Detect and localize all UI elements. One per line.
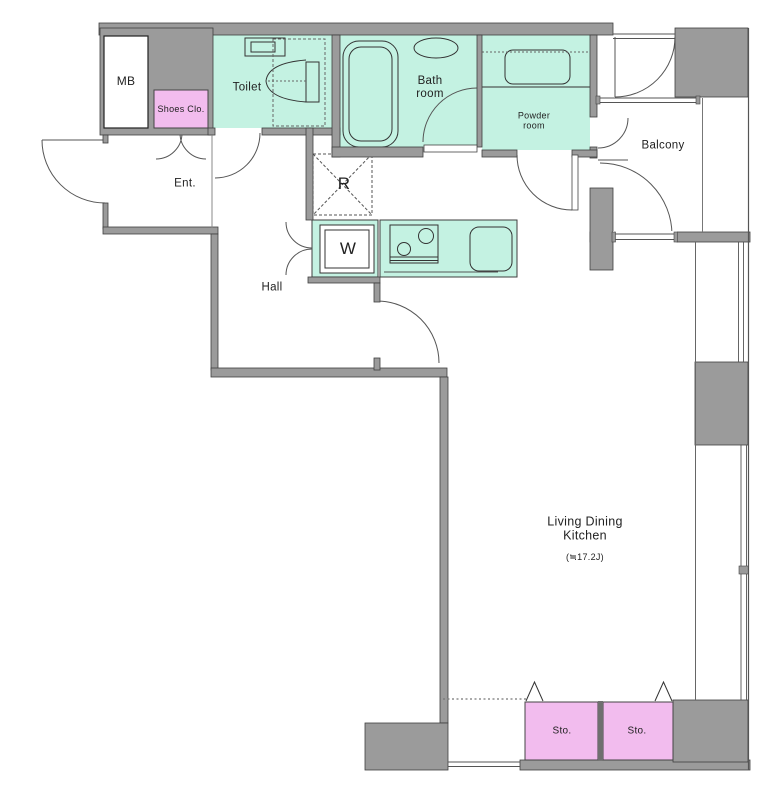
powder-door-leaf	[572, 155, 578, 210]
wall-bath-bottom	[332, 147, 423, 157]
wall-top-right-block	[675, 28, 748, 97]
storage-left-folding-door-icon	[526, 682, 543, 701]
wall-powder-bottom-left	[482, 150, 517, 157]
washer-label: W	[340, 239, 356, 259]
shoes-closet-label: Shoes Clo.	[157, 104, 204, 114]
kitchen-counter	[380, 220, 517, 277]
wall-under-washer	[308, 277, 380, 283]
wall-bottom-left-block	[365, 723, 448, 770]
powder-balcony-door-arc	[598, 118, 628, 148]
wall-balcony-west-a	[590, 35, 597, 117]
ldk-label: Living Dining Kitchen	[547, 515, 622, 544]
powder-door-arc	[517, 155, 572, 210]
balcony-partition-line	[597, 98, 700, 103]
wall-hall-west	[211, 234, 218, 370]
toilet-label: Toilet	[233, 81, 262, 94]
storage-divider	[598, 701, 603, 760]
washer-closet-door-arcs	[286, 222, 312, 275]
wall-kitchen-door-stub-bottom	[374, 358, 380, 370]
entrance-door-arc	[42, 140, 105, 203]
wall-hall-bottom	[211, 368, 447, 377]
wall-bottom-right-block	[673, 700, 748, 762]
wall-refrigerator-west	[306, 128, 313, 220]
hall-label: Hall	[261, 281, 282, 294]
balcony-label: Balcony	[641, 139, 684, 152]
wall-right-pillar	[695, 362, 748, 445]
balcony-top-door-head	[613, 34, 675, 39]
toilet-door-arc	[215, 133, 260, 178]
powder-room-label: Powder room	[518, 111, 550, 132]
bath-door-leaf	[424, 145, 477, 152]
partition-cap-right	[696, 96, 700, 104]
floor-plan: MB Shoes Clo. Toilet Bath room Powder ro…	[0, 0, 778, 800]
storage-right-folding-door-icon	[655, 682, 672, 701]
wall-balcony-column	[590, 188, 613, 270]
wall-ent-bottom	[103, 227, 218, 234]
wall-ent-jamb-bottom	[103, 203, 108, 229]
wall-kitchen-door-stub-top	[374, 283, 380, 302]
bathroom-label: Bath room	[416, 75, 443, 101]
storage-left-label: Sto.	[553, 725, 572, 737]
ldk-area-label: (≒17.2J)	[566, 552, 604, 562]
storage-right-label: Sto.	[628, 725, 647, 737]
wall-ldk-west	[440, 377, 448, 723]
wall-toilet-bottom-right	[262, 128, 340, 135]
ldk-bottom-window	[448, 762, 520, 767]
partition-cap-left	[596, 96, 600, 104]
kitchen-door-arc	[377, 301, 439, 363]
window-mullion	[739, 566, 749, 574]
wall-toilet-bath	[332, 35, 340, 157]
wall-toilet-bottom-left	[208, 128, 215, 135]
refrigerator-label: R	[338, 174, 351, 194]
wall-ent-jamb-top	[103, 135, 108, 143]
ldk-window-bay1	[739, 242, 744, 362]
wall-balcony-bottom-right	[677, 232, 750, 242]
wall-bath-powder	[477, 35, 482, 147]
shoes-closet-door-arcs	[156, 133, 206, 159]
mb-label: MB	[117, 75, 136, 89]
entrance-label: Ent.	[174, 177, 196, 190]
balcony-top-door-arc	[615, 37, 675, 97]
floor-plan-drawing	[0, 0, 778, 800]
ldk-balcony-window	[612, 231, 678, 242]
